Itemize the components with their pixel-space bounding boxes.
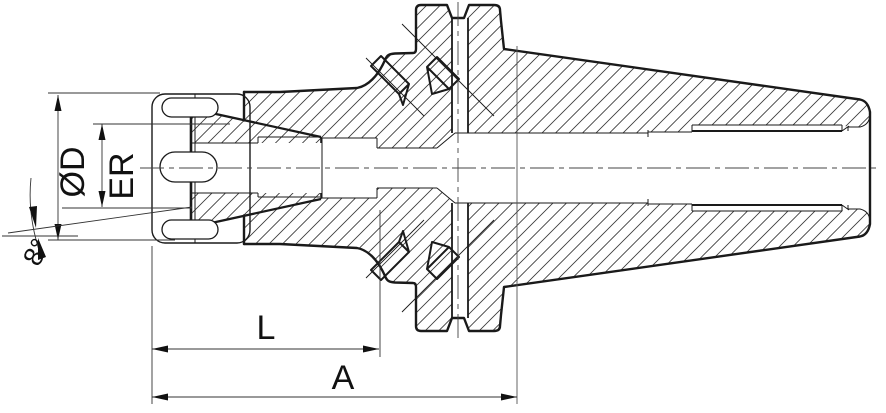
tool-holder-section-view: ØD ER 8° L A [0,0,886,413]
length-a-label: A [332,359,355,397]
er-label: ER [103,152,141,199]
taper-angle-label: 8° [17,234,56,271]
arrowhead-up [99,124,106,140]
arrowhead-up [55,95,62,111]
arrowhead-left [152,394,168,401]
arrowhead-left [152,346,168,353]
technical-drawing-canvas: ØD ER 8° L A [0,0,886,413]
length-l-label: L [257,309,276,347]
arrowhead-right [363,346,379,353]
clamping-nut [152,94,250,243]
diameter-d-label: ØD [54,147,92,198]
arrowhead-right [501,394,517,401]
dimension-overall-length: A [152,359,517,401]
